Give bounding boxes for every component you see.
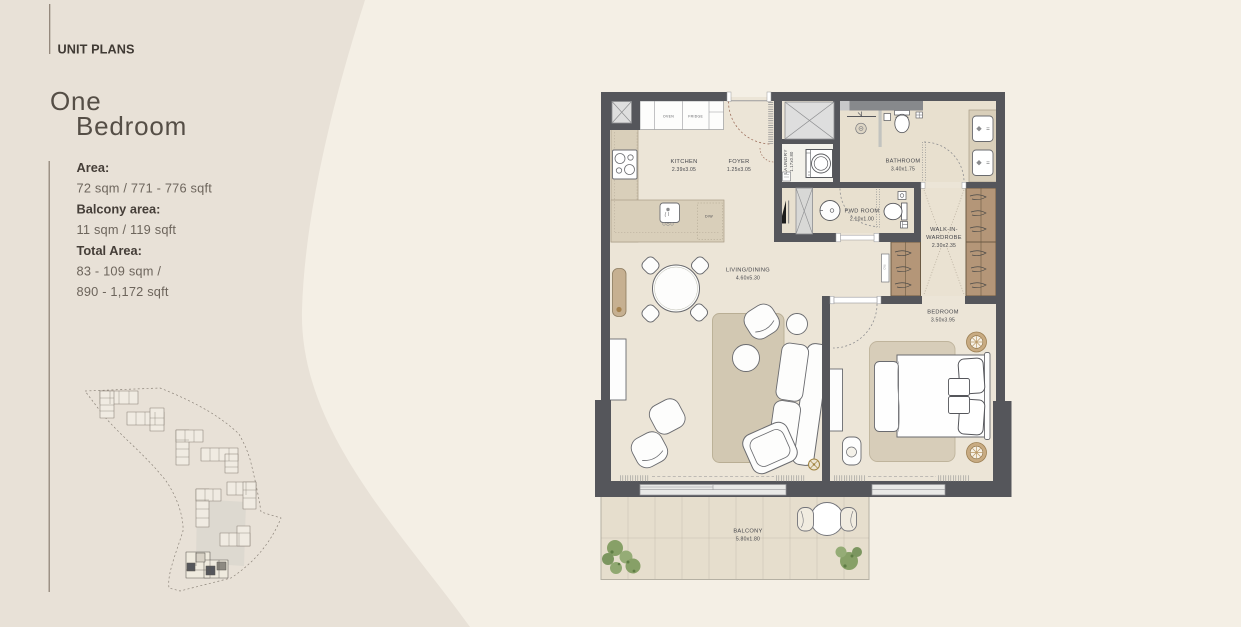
svg-text:BALCONY: BALCONY xyxy=(733,529,762,535)
svg-text:3.50x3.95: 3.50x3.95 xyxy=(931,318,955,324)
svg-text:FRIDGE: FRIDGE xyxy=(688,115,703,119)
svg-text:Balcony area:: Balcony area: xyxy=(77,201,161,216)
svg-text:WARDROBE: WARDROBE xyxy=(926,235,962,241)
svg-text:Total Area:: Total Area: xyxy=(77,243,142,258)
svg-text:2.39x3.05: 2.39x3.05 xyxy=(672,167,696,173)
svg-text:WALK-IN-: WALK-IN- xyxy=(930,227,958,233)
svg-text:D/W: D/W xyxy=(705,215,713,219)
svg-text:BEDROOM: BEDROOM xyxy=(927,310,959,316)
svg-text:5.80x1.80: 5.80x1.80 xyxy=(736,537,760,543)
svg-text:1.17x0.80: 1.17x0.80 xyxy=(789,151,794,172)
svg-text:LIVING/DINING: LIVING/DINING xyxy=(726,268,770,274)
svg-text:1.25x3.05: 1.25x3.05 xyxy=(727,167,751,173)
svg-text:2.30x2.35: 2.30x2.35 xyxy=(932,243,956,249)
svg-text:Area:: Area: xyxy=(77,160,110,175)
svg-text:BATHROOM: BATHROOM xyxy=(886,159,921,165)
svg-text:Bedroom: Bedroom xyxy=(76,111,187,141)
svg-text:OVEN: OVEN xyxy=(663,115,674,119)
svg-text:72 sqm / 771 - 776 sqft: 72 sqm / 771 - 776 sqft xyxy=(77,181,213,196)
svg-text:890 - 1,172 sqft: 890 - 1,172 sqft xyxy=(77,284,169,299)
svg-text:4.60x5.30: 4.60x5.30 xyxy=(736,276,760,282)
svg-text:3.40x1.75: 3.40x1.75 xyxy=(891,167,915,173)
svg-text:11 sqm / 119 sqft: 11 sqm / 119 sqft xyxy=(77,222,177,237)
svg-text:PWD ROOM: PWD ROOM xyxy=(845,209,880,215)
svg-text:UNIT PLANS: UNIT PLANS xyxy=(58,43,135,57)
svg-text:2.10x1.00: 2.10x1.00 xyxy=(850,217,874,223)
svg-text:CRU: CRU xyxy=(884,264,887,269)
svg-text:KITCHEN: KITCHEN xyxy=(670,159,697,165)
svg-text:83 - 109 sqm /: 83 - 109 sqm / xyxy=(77,264,162,279)
svg-text:FOYER: FOYER xyxy=(728,159,749,165)
svg-text:LAUNDRY: LAUNDRY xyxy=(783,149,788,174)
